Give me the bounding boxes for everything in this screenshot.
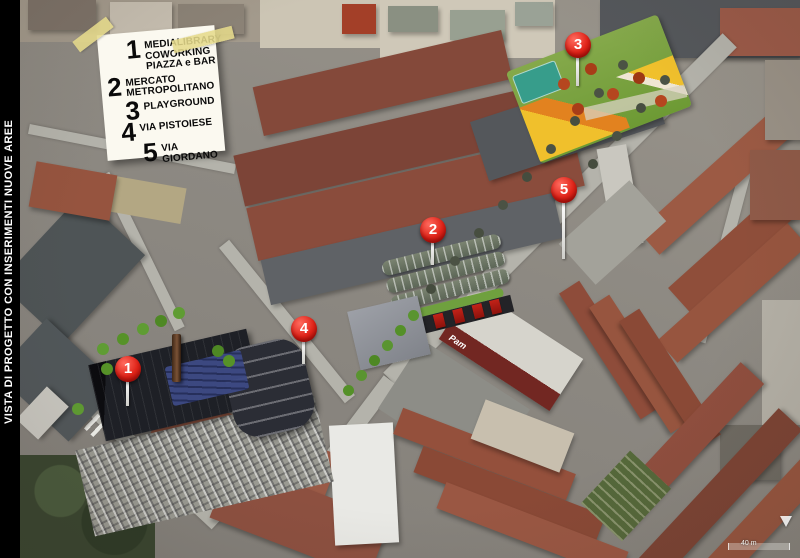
apartment-tower (762, 300, 800, 425)
street-tree-row (618, 60, 628, 70)
pin-number: 1 (115, 356, 141, 382)
pin-stem (126, 378, 129, 406)
building-block (388, 6, 438, 32)
map-pin-1[interactable]: 1 (115, 356, 141, 382)
building-block (765, 60, 800, 140)
title-sidebar: VISTA DI PROGETTO CON INSERIMENTI NUOVE … (0, 0, 20, 558)
map-pin-5[interactable]: 5 (551, 177, 577, 203)
aerial-map: Pam (20, 0, 800, 558)
street-tree-row (660, 75, 670, 85)
map-pin-4[interactable]: 4 (291, 316, 317, 342)
building-block (750, 150, 800, 220)
scale-bar: 40 m (728, 543, 790, 550)
apartment-tower (329, 422, 399, 545)
map-pin-3[interactable]: 3 (565, 32, 591, 58)
autumn-tree-row (558, 78, 570, 90)
building-block (29, 161, 118, 221)
navigation-arrow-icon (780, 516, 792, 527)
scale-label: 40 m (741, 540, 757, 547)
map-pin-2[interactable]: 2 (420, 217, 446, 243)
project-view-board: Pam (0, 0, 800, 558)
new-tree-row (408, 310, 419, 321)
page-title: VISTA DI PROGETTO CON INSERIMENTI NUOVE … (3, 120, 15, 424)
building-block (28, 0, 96, 30)
legend-number: 2 (106, 76, 122, 98)
building-block (515, 2, 553, 26)
legend-number: 5 (142, 142, 158, 164)
chimney (172, 334, 181, 382)
legend-number: 1 (125, 39, 141, 61)
building-block (342, 4, 376, 34)
legend-number: 4 (120, 122, 136, 144)
pin-stem (562, 199, 565, 259)
pin-number: 3 (565, 32, 591, 58)
pin-stem (576, 54, 579, 86)
new-tree-row (97, 343, 109, 355)
pin-number: 2 (420, 217, 446, 243)
legend-label: VIA GIORDANO (161, 136, 221, 165)
pin-number: 4 (291, 316, 317, 342)
pin-number: 5 (551, 177, 577, 203)
